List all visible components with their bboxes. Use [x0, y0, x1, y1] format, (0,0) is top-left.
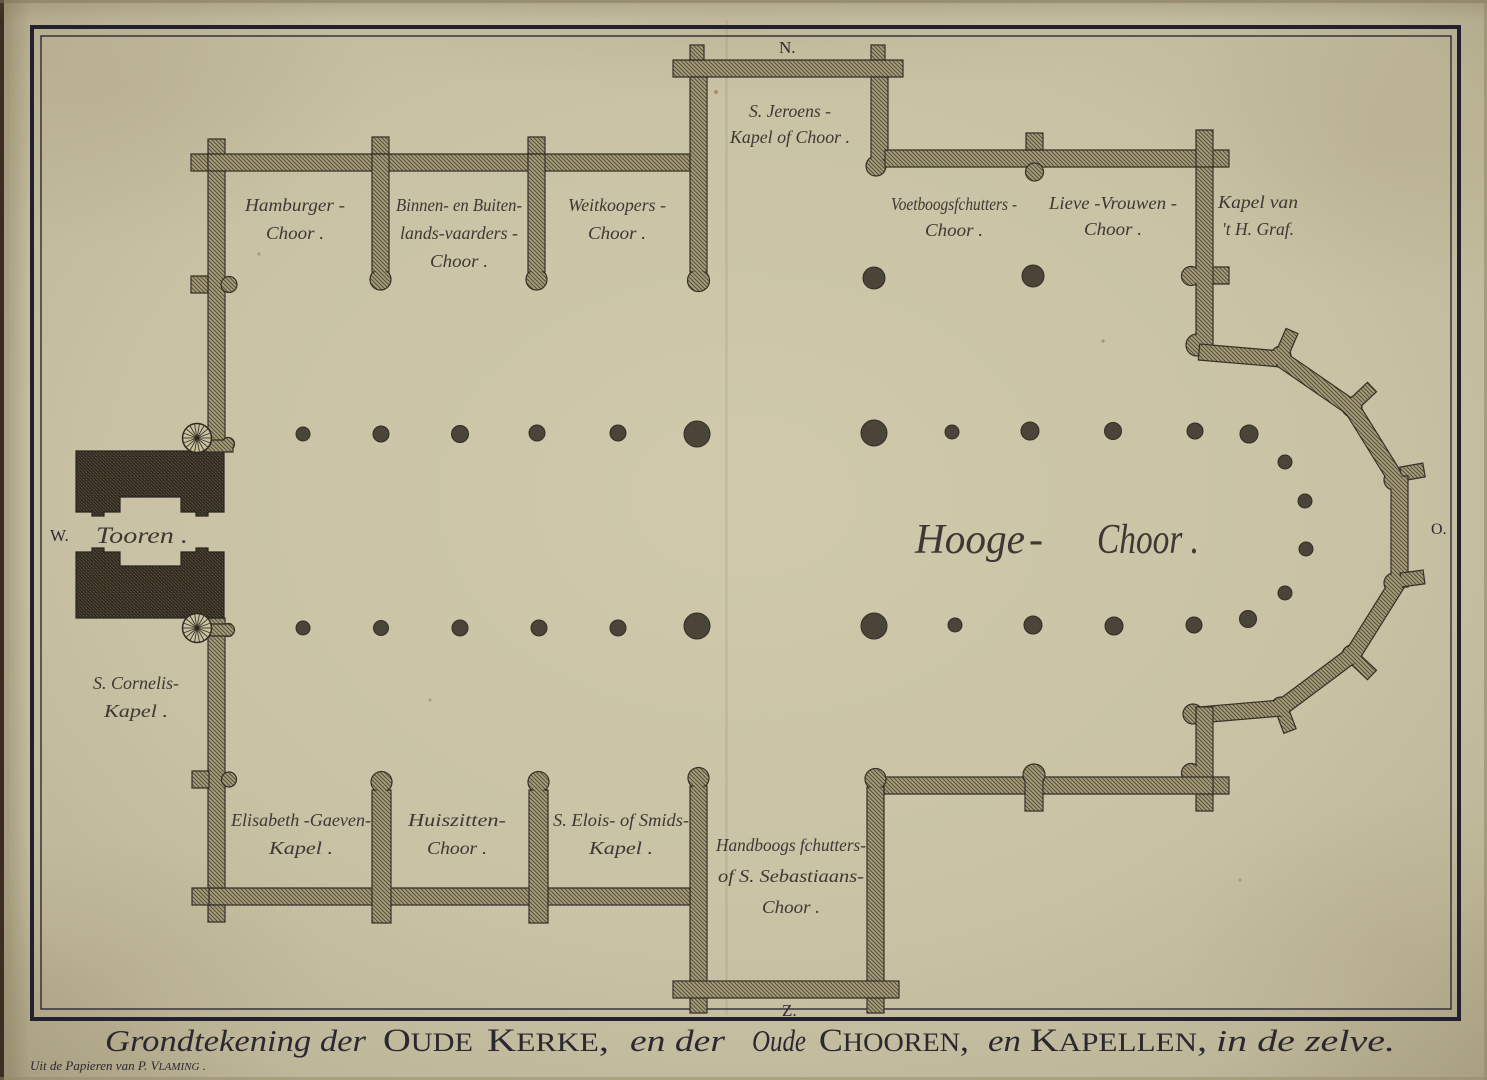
- svg-text:Grondtekening der: Grondtekening der: [105, 1023, 367, 1058]
- svg-text:Choor .: Choor .: [588, 223, 646, 243]
- svg-text:Kapel .: Kapel .: [268, 838, 333, 858]
- svg-text:Oude: Oude: [752, 1023, 806, 1058]
- svg-text:Handboogs fchutters-: Handboogs fchutters-: [715, 835, 866, 855]
- svg-text:Kapel .: Kapel .: [103, 701, 168, 721]
- svg-text:of S. Sebastiaans-: of S. Sebastiaans-: [718, 866, 864, 886]
- svg-text:lands-vaarders -: lands-vaarders -: [400, 223, 518, 243]
- svg-text:Weitkoopers -: Weitkoopers -: [568, 195, 666, 215]
- svg-text:Choor .: Choor .: [1097, 517, 1199, 563]
- svg-text:CHOOREN,: CHOOREN,: [819, 1023, 969, 1059]
- svg-text:Choor .: Choor .: [925, 220, 983, 240]
- svg-text:in de zelve.: in de zelve.: [1216, 1023, 1395, 1058]
- svg-text:Choor .: Choor .: [1084, 219, 1142, 239]
- svg-text:Tooren .: Tooren .: [96, 523, 188, 548]
- svg-text:Choor .: Choor .: [430, 251, 488, 271]
- svg-text:KERKE,: KERKE,: [487, 1023, 609, 1059]
- svg-text:W.: W.: [50, 526, 69, 545]
- svg-text:Voetboogsfchutters -: Voetboogsfchutters -: [891, 194, 1017, 214]
- svg-text:Huiszitten-: Huiszitten-: [407, 810, 506, 830]
- svg-text:Uit de Papieren van P. VLAMING: Uit de Papieren van P. VLAMING .: [30, 1058, 206, 1073]
- svg-text:Kapel of Choor .: Kapel of Choor .: [729, 127, 850, 147]
- svg-text:Z.: Z.: [782, 1001, 797, 1020]
- svg-text:Choor .: Choor .: [266, 223, 324, 243]
- svg-text:Choor .: Choor .: [427, 838, 487, 858]
- svg-text:Lieve -Vrouwen -: Lieve -Vrouwen -: [1048, 193, 1177, 213]
- svg-text:S. Elois- of Smids-: S. Elois- of Smids-: [553, 810, 689, 830]
- svg-text:OUDE: OUDE: [383, 1023, 473, 1059]
- svg-text:-: -: [1029, 517, 1043, 563]
- svg-text:Kapel .: Kapel .: [588, 838, 653, 858]
- svg-text:en: en: [988, 1023, 1021, 1058]
- svg-text:O.: O.: [1431, 521, 1447, 538]
- svg-text:'t H. Graf.: 't H. Graf.: [1222, 219, 1294, 239]
- svg-text:S. Jeroens -: S. Jeroens -: [749, 101, 831, 121]
- svg-text:Choor .: Choor .: [762, 897, 820, 917]
- svg-text:N.: N.: [779, 38, 796, 57]
- svg-text:Binnen- en Buiten-: Binnen- en Buiten-: [396, 195, 522, 215]
- svg-text:Hamburger -: Hamburger -: [244, 195, 345, 215]
- svg-text:Kapel van: Kapel van: [1217, 192, 1298, 212]
- svg-text:S. Cornelis-: S. Cornelis-: [93, 673, 179, 693]
- svg-text:Elisabeth -Gaeven-: Elisabeth -Gaeven-: [230, 810, 371, 830]
- svg-text:KAPELLEN,: KAPELLEN,: [1030, 1023, 1207, 1059]
- svg-text:en der: en der: [630, 1023, 726, 1058]
- svg-text:Hooge: Hooge: [914, 517, 1025, 563]
